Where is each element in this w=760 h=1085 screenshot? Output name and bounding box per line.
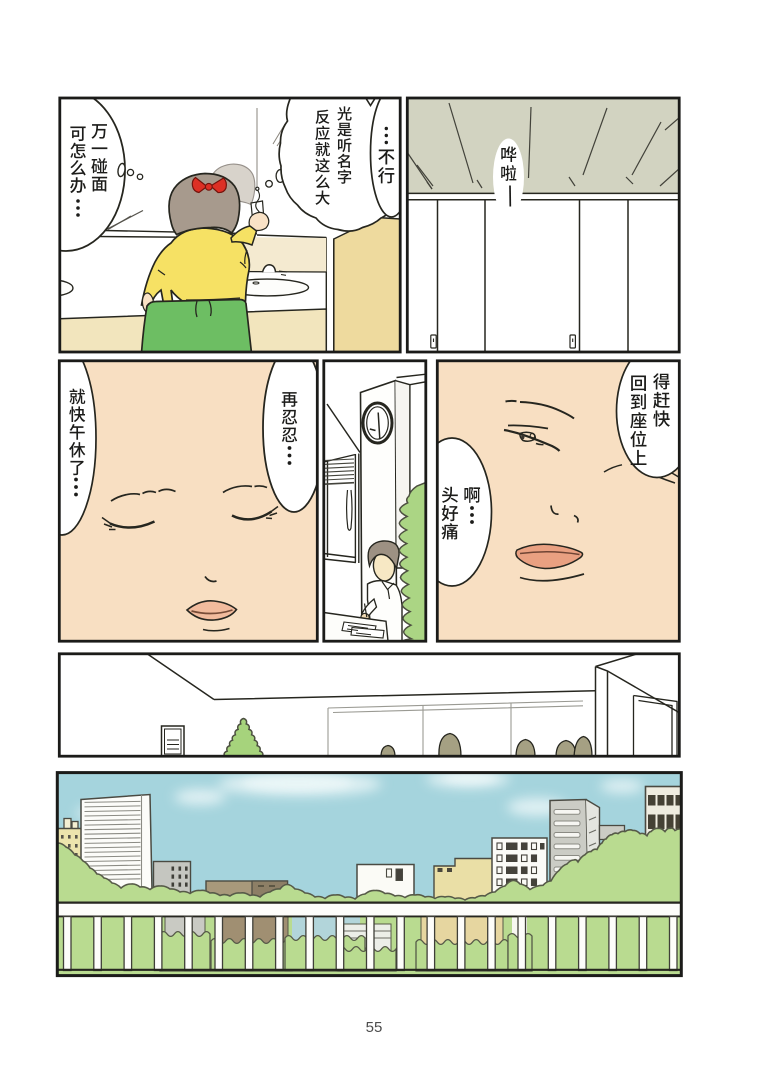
svg-text:55: 55 xyxy=(366,1019,383,1036)
